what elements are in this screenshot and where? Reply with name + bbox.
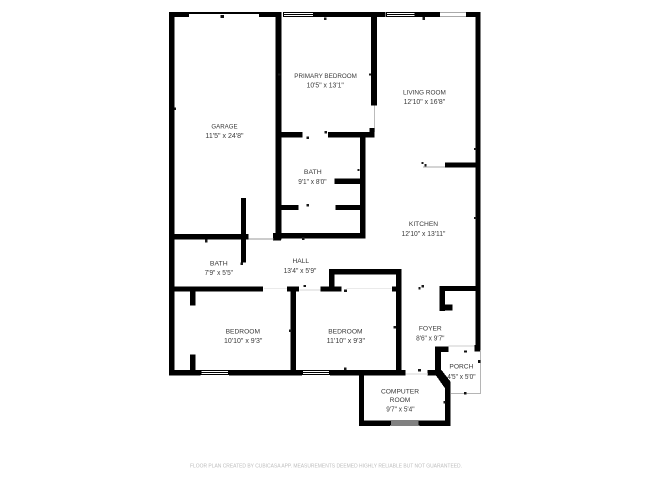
- svg-text:COMPUTER: COMPUTER: [381, 388, 419, 395]
- svg-text:ROOM: ROOM: [390, 397, 411, 404]
- svg-text:BEDROOM: BEDROOM: [226, 328, 261, 335]
- svg-text:4'5" x 5'0": 4'5" x 5'0": [447, 374, 476, 381]
- svg-text:GARAGE: GARAGE: [211, 123, 238, 130]
- svg-text:11'5" x 24'8": 11'5" x 24'8": [205, 133, 244, 140]
- svg-text:8'6" x 9'7": 8'6" x 9'7": [416, 335, 445, 342]
- svg-text:9'7" x 5'4": 9'7" x 5'4": [386, 407, 415, 414]
- svg-text:9'1" x 8'0": 9'1" x 8'0": [298, 179, 327, 186]
- svg-text:BEDROOM: BEDROOM: [328, 328, 363, 335]
- svg-text:11'10" x 9'3": 11'10" x 9'3": [327, 338, 366, 345]
- svg-text:FOYER: FOYER: [419, 326, 442, 333]
- svg-text:12'10" x 16'8": 12'10" x 16'8": [404, 99, 446, 106]
- svg-text:12'10" x 13'11": 12'10" x 13'11": [402, 231, 446, 238]
- svg-text:BATH: BATH: [210, 261, 228, 268]
- svg-text:BATH: BATH: [304, 169, 322, 176]
- svg-text:LIVING ROOM: LIVING ROOM: [403, 89, 446, 96]
- svg-text:HALL: HALL: [292, 258, 309, 265]
- svg-text:PORCH: PORCH: [449, 363, 473, 370]
- svg-text:13'4" x 5'9": 13'4" x 5'9": [284, 268, 317, 275]
- svg-text:10'5" x 13'1": 10'5" x 13'1": [307, 82, 345, 89]
- svg-text:FLOOR PLAN CREATED BY CUBICASA: FLOOR PLAN CREATED BY CUBICASA APP. MEAS…: [190, 464, 462, 470]
- svg-text:PRIMARY BEDROOM: PRIMARY BEDROOM: [294, 73, 357, 80]
- svg-text:KITCHEN: KITCHEN: [409, 221, 438, 228]
- svg-text:10'10" x 9'3": 10'10" x 9'3": [224, 338, 263, 345]
- svg-text:7'9" x 5'5": 7'9" x 5'5": [205, 270, 234, 277]
